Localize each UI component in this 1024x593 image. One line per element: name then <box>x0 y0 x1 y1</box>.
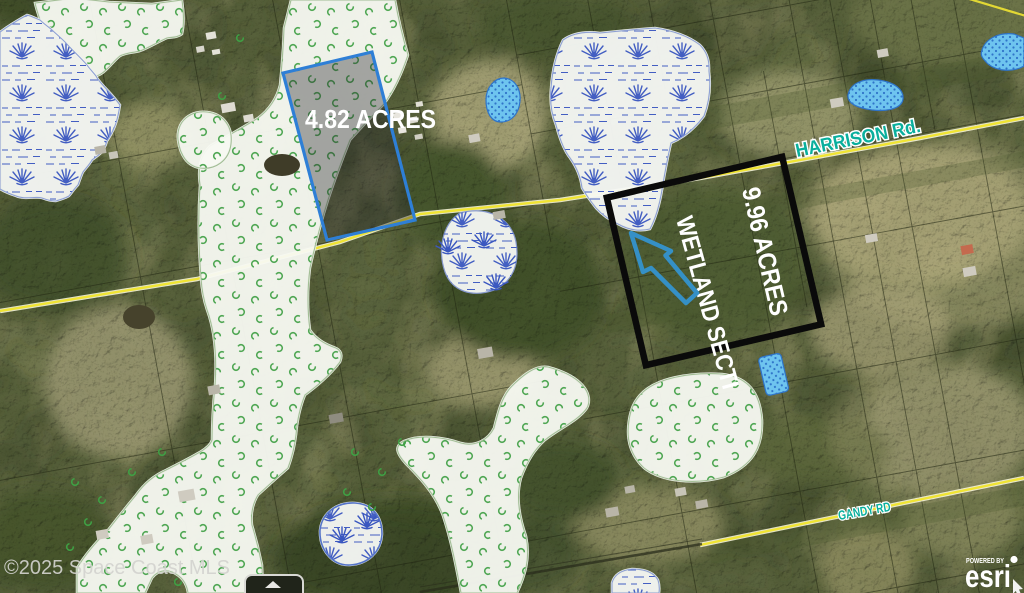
svg-text:esri: esri <box>965 558 1011 593</box>
svg-text:4.82 ACRES: 4.82 ACRES <box>305 106 436 134</box>
svg-text:©2025 Space Coast MLS: ©2025 Space Coast MLS <box>4 557 230 579</box>
